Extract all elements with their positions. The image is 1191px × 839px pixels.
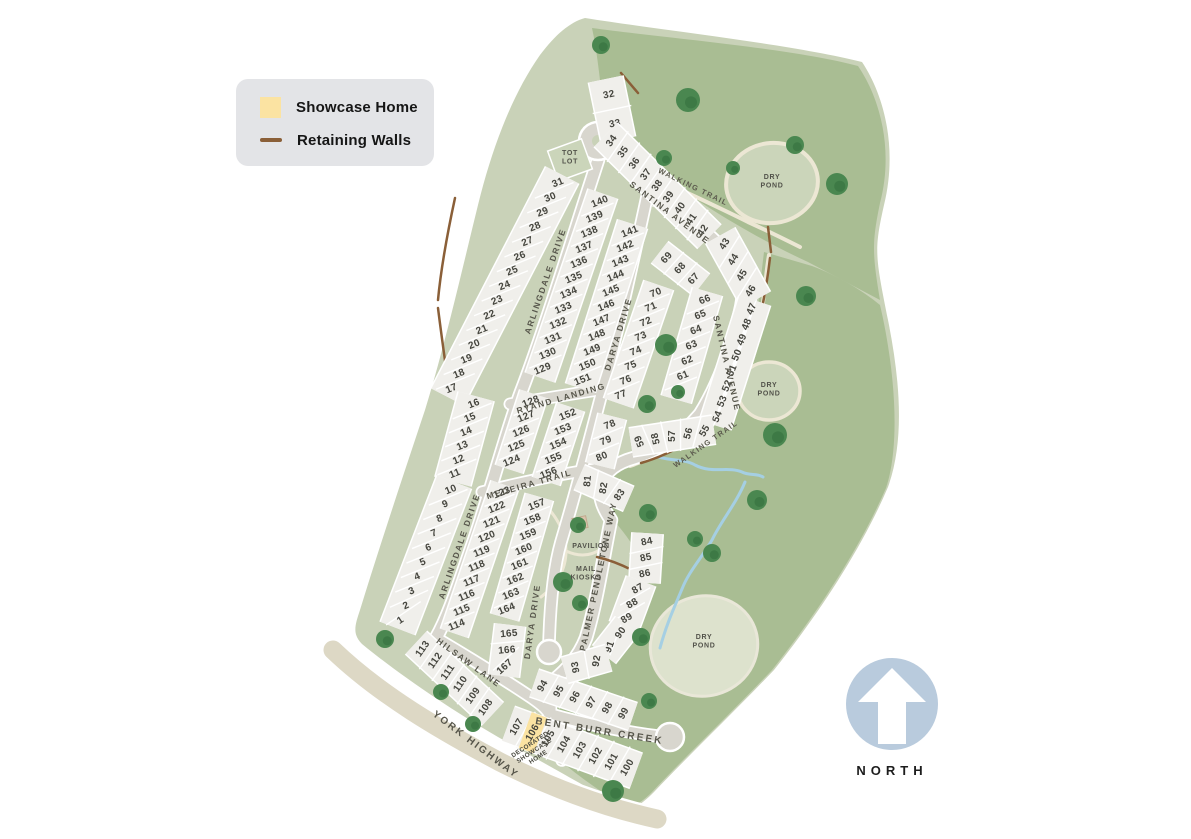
dry-pond-north-label: DRYPOND: [760, 174, 783, 190]
dry-pond-south-label: DRYPOND: [692, 634, 715, 650]
tree-icon: [826, 173, 848, 195]
tree-icon: [641, 693, 657, 709]
lot-row: 9293: [564, 649, 608, 679]
tree-icon: [638, 395, 656, 413]
legend-item-showcase-home: Showcase Home: [260, 97, 434, 118]
tree-icon: [747, 490, 767, 510]
lot-row: 9091: [603, 625, 629, 656]
showcase-home-swatch-icon: [260, 97, 281, 118]
tree-icon: [656, 150, 672, 166]
tree-icon: [703, 544, 721, 562]
lot-57[interactable]: 57: [667, 430, 678, 442]
cul-de-sac-darya: [537, 640, 561, 664]
tot-lot-label: TOTLOT: [562, 150, 578, 166]
lot-93[interactable]: 93: [570, 660, 583, 674]
tree-icon: [671, 385, 685, 399]
tree-icon: [592, 36, 610, 54]
tree-icon: [465, 716, 481, 732]
lot-row: 848586: [628, 533, 663, 583]
tree-icon: [676, 88, 700, 112]
tree-icon: [632, 628, 650, 646]
lot-row: 165166167: [491, 625, 526, 677]
tree-icon: [687, 531, 703, 547]
lot-81[interactable]: 81: [582, 475, 594, 488]
tree-icon: [602, 780, 624, 802]
site-plan-page: 3233343536373839404142313029282726252423…: [0, 0, 1191, 839]
legend-retaining-walls-label: Retaining Walls: [297, 132, 411, 149]
tree-icon: [763, 423, 787, 447]
lot-82[interactable]: 82: [598, 481, 611, 495]
north-label: NORTH: [839, 763, 945, 778]
tree-icon: [433, 684, 449, 700]
tree-icon: [639, 504, 657, 522]
tree-icon: [655, 334, 677, 356]
north-indicator: NORTH: [839, 656, 945, 778]
lot-166[interactable]: 166: [498, 644, 517, 657]
tree-icon: [796, 286, 816, 306]
legend-item-retaining-walls: Retaining Walls: [260, 132, 434, 149]
legend: Showcase Home Retaining Walls: [236, 79, 434, 166]
dry-pond-middle-label: DRYPOND: [757, 382, 780, 398]
pavilion-label: PAVILION: [572, 543, 610, 550]
legend-showcase-home-label: Showcase Home: [296, 99, 418, 116]
lot-165[interactable]: 165: [500, 628, 519, 641]
site-plan-svg: 3233343536373839404142313029282726252423…: [0, 0, 1191, 839]
tree-icon: [786, 136, 804, 154]
north-arrow-icon: [840, 656, 944, 752]
tree-icon: [726, 161, 740, 175]
tree-icon: [376, 630, 394, 648]
tree-icon: [570, 517, 586, 533]
lot-92[interactable]: 92: [591, 654, 604, 668]
retaining-wall-swatch-icon: [260, 138, 282, 142]
